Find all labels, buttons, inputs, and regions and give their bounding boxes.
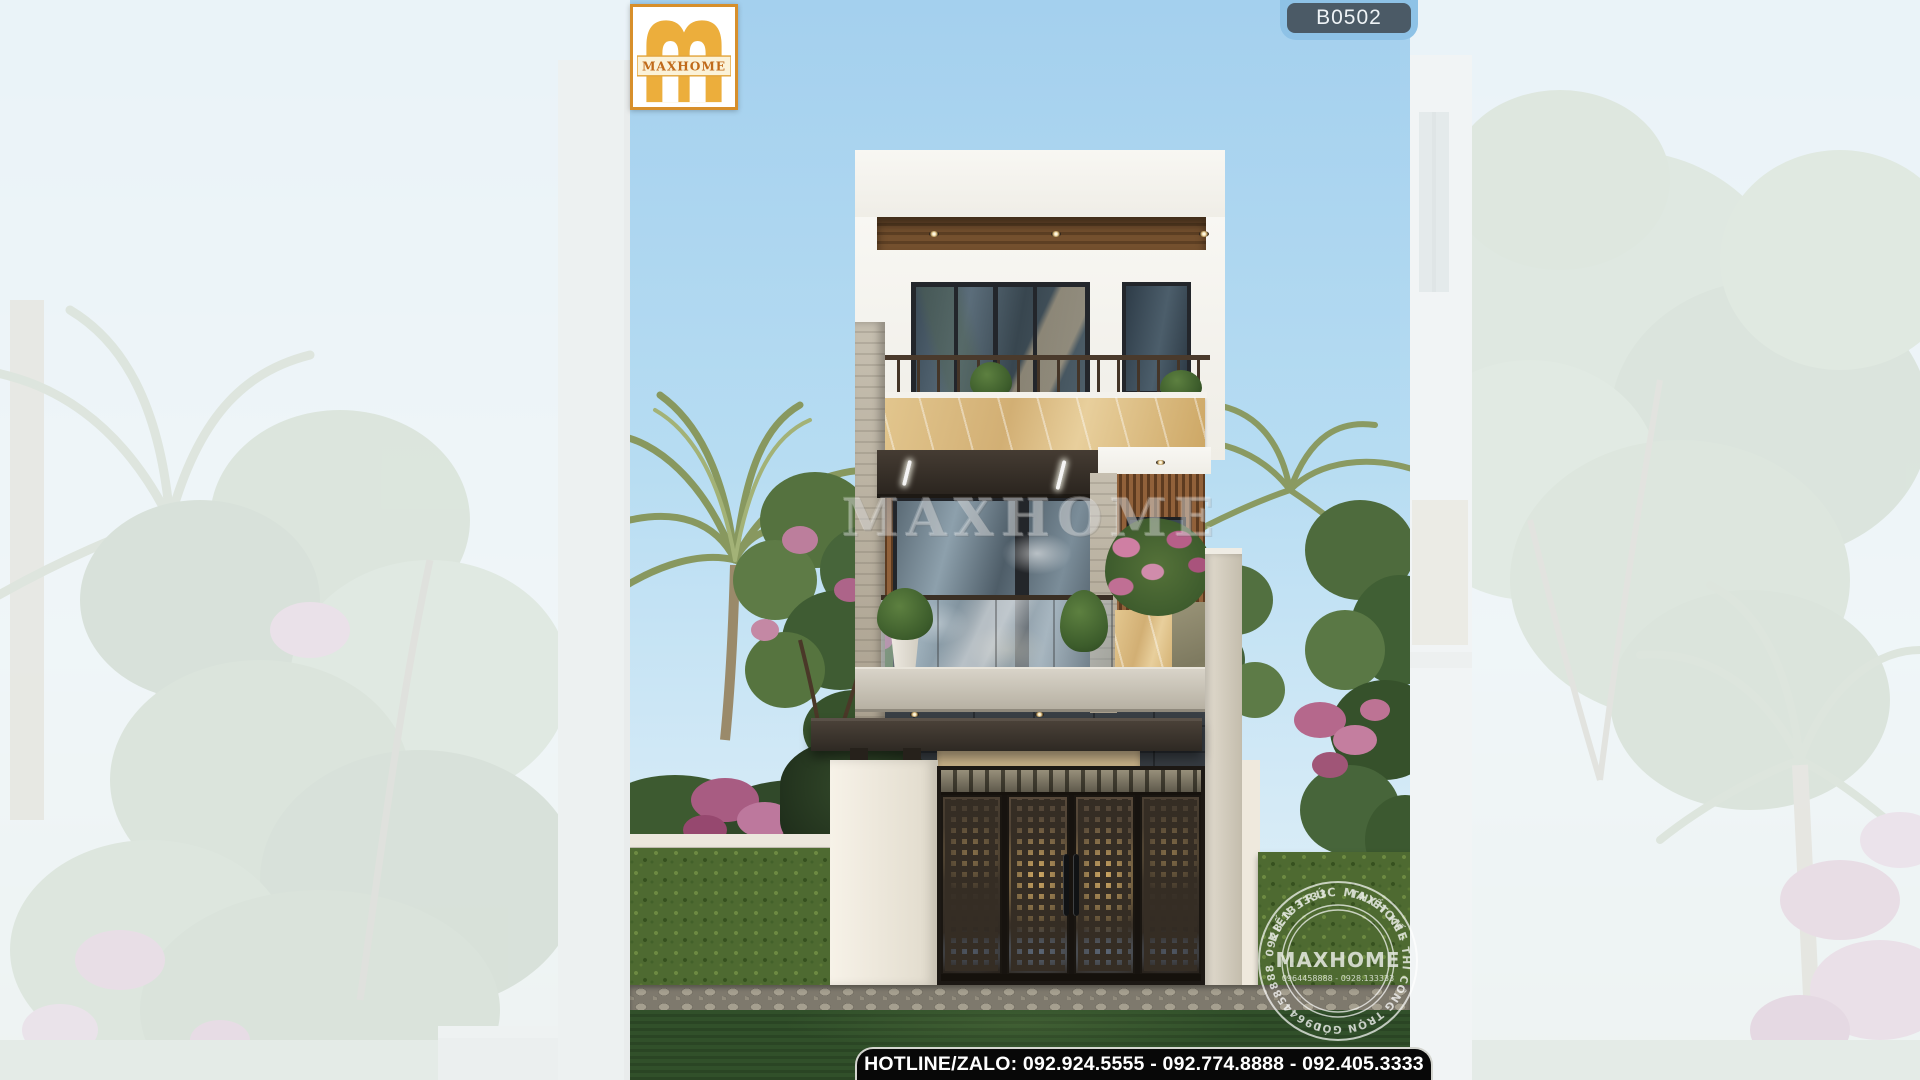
gate-panel: [1140, 795, 1201, 975]
model-badge-label: B0502: [1316, 6, 1382, 30]
stamp-center-brand: MAXHOME: [1275, 948, 1400, 972]
stamp-center-phones: 0964458888 - 0928.133333: [1282, 974, 1394, 983]
render-canvas: MAXHOME MAXHOME B0502 KIẾN TRÚC MAXHOME: [0, 0, 1920, 1080]
gate-panel: [1007, 795, 1068, 975]
parapet-coping: [875, 392, 1207, 398]
brand-watermark: MAXHOME: [842, 488, 1221, 549]
carport-downlight-icon: [910, 712, 919, 717]
hotline-text: HOTLINE/ZALO: 092.924.5555 - 092.774.888…: [864, 1053, 1424, 1076]
downlight-icon: [1199, 231, 1209, 237]
roof-parapet: [855, 150, 1225, 221]
left-hedge: [630, 848, 830, 988]
led-strip-light: [902, 460, 912, 486]
gate-panel: [1074, 795, 1135, 975]
gate-door-leaves: [941, 795, 1201, 975]
gate-canopy: [811, 718, 1202, 751]
downlight-icon: [1051, 231, 1061, 237]
left-gate-post: [830, 760, 938, 986]
maxhome-logo: MAXHOME: [630, 4, 738, 110]
gate-handle: [1063, 854, 1069, 916]
model-badge-tab: B0502: [1280, 0, 1418, 40]
gate-panel: [941, 795, 1002, 975]
logo-wordmark: MAXHOME: [642, 60, 726, 74]
second-floor-right-band: [1098, 447, 1211, 474]
tall-gate-column: [1205, 548, 1242, 991]
carport-downlight-icon: [1035, 712, 1044, 717]
floor-slab-band: [855, 667, 1225, 712]
balcony-marble-parapet: [877, 397, 1205, 452]
model-badge: B0502: [1287, 3, 1411, 33]
led-strip-light: [1055, 460, 1066, 490]
stamp-watermark: KIẾN TRÚC MAXHOME THIẾT KẾ - THI CÔNG TR…: [1253, 876, 1423, 1046]
gate-bottom-rail: [941, 974, 1201, 981]
main-gate: [937, 766, 1205, 985]
downlight-icon: [929, 231, 939, 237]
roof-soffit-wood: [877, 217, 1206, 250]
downlight-icon: [1156, 460, 1165, 465]
logo-m-icon: MAXHOME: [637, 11, 731, 103]
hotline-bar: HOTLINE/ZALO: 092.924.5555 - 092.774.888…: [855, 1047, 1433, 1080]
gate-transom-window: [941, 770, 1201, 795]
gate-handle: [1073, 854, 1079, 916]
